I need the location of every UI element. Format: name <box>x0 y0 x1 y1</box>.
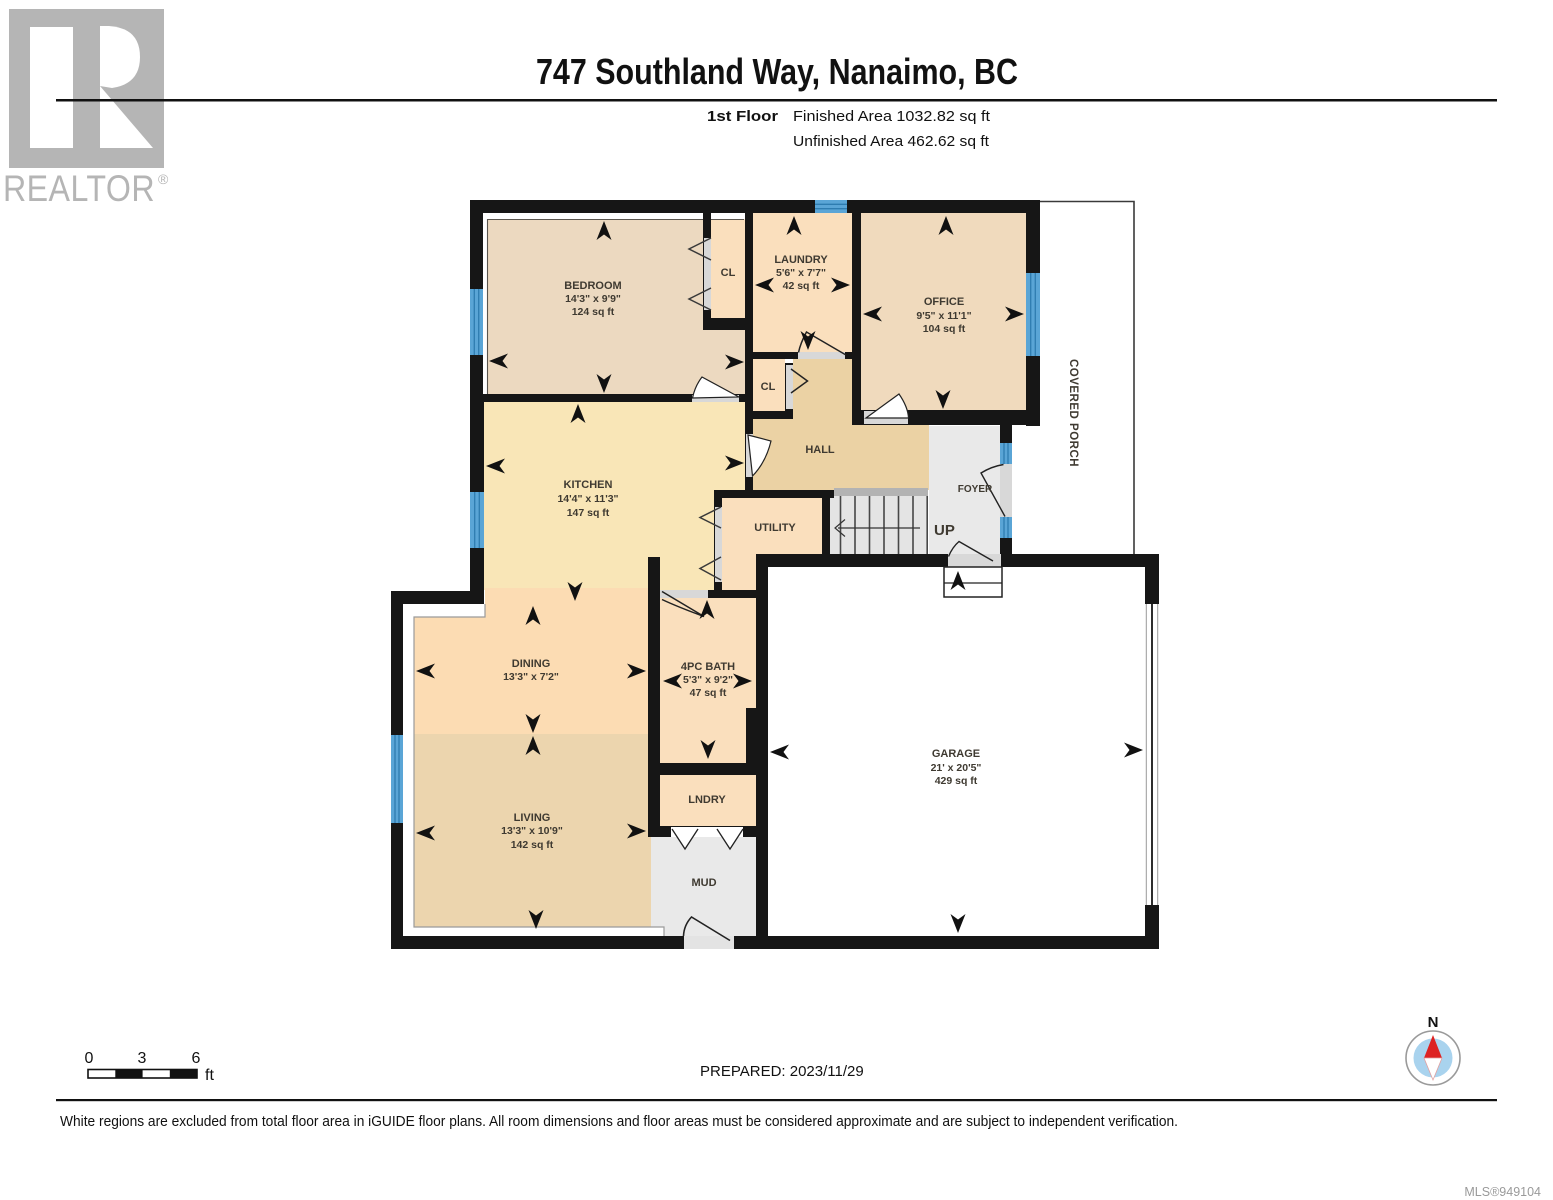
svg-text:®: ® <box>158 171 169 187</box>
svg-text:LAUNDRY: LAUNDRY <box>774 254 828 266</box>
svg-text:GARAGE: GARAGE <box>932 748 980 760</box>
svg-text:5'3" x 9'2": 5'3" x 9'2" <box>683 674 733 686</box>
svg-text:DINING: DINING <box>512 658 551 670</box>
svg-text:21' x 20'5": 21' x 20'5" <box>931 762 982 774</box>
svg-text:FOYER: FOYER <box>958 484 993 495</box>
svg-text:747 Southland Way, Nanaimo, BC: 747 Southland Way, Nanaimo, BC <box>536 51 1018 92</box>
svg-text:13'3" x 7'2": 13'3" x 7'2" <box>503 671 559 683</box>
svg-text:4PC BATH: 4PC BATH <box>681 661 735 673</box>
svg-text:104 sq ft: 104 sq ft <box>923 323 966 335</box>
svg-text:429 sq ft: 429 sq ft <box>935 775 978 787</box>
svg-text:Finished Area 1032.82 sq ft: Finished Area 1032.82 sq ft <box>793 108 991 125</box>
svg-text:BEDROOM: BEDROOM <box>564 280 621 292</box>
svg-text:UTILITY: UTILITY <box>754 522 796 534</box>
svg-text:COVERED PORCH: COVERED PORCH <box>1067 359 1079 467</box>
svg-text:14'4" x 11'3": 14'4" x 11'3" <box>557 493 618 505</box>
svg-text:47 sq ft: 47 sq ft <box>690 687 727 699</box>
svg-text:5'6" x 7'7": 5'6" x 7'7" <box>776 267 826 279</box>
svg-text:0: 0 <box>85 1050 94 1067</box>
svg-text:KITCHEN: KITCHEN <box>564 479 613 491</box>
svg-text:6: 6 <box>192 1050 201 1067</box>
svg-text:LNDRY: LNDRY <box>688 794 726 806</box>
svg-text:147 sq ft: 147 sq ft <box>567 507 610 519</box>
svg-text:142 sq ft: 142 sq ft <box>511 839 554 851</box>
svg-text:CL: CL <box>761 381 776 393</box>
svg-text:42 sq ft: 42 sq ft <box>783 280 820 292</box>
svg-text:MUD: MUD <box>691 877 716 889</box>
svg-text:OFFICE: OFFICE <box>924 296 964 308</box>
svg-text:REALTOR: REALTOR <box>3 168 155 209</box>
svg-text:CL: CL <box>721 267 736 279</box>
svg-text:UP: UP <box>934 522 955 539</box>
svg-text:PREPARED: 2023/11/29: PREPARED: 2023/11/29 <box>700 1063 864 1080</box>
svg-text:N: N <box>1428 1014 1439 1031</box>
svg-text:9'5" x 11'1": 9'5" x 11'1" <box>916 310 971 322</box>
svg-text:Unfinished Area 462.62 sq ft: Unfinished Area 462.62 sq ft <box>793 133 990 150</box>
svg-text:14'3" x 9'9": 14'3" x 9'9" <box>565 293 621 305</box>
svg-text:MLS®949104: MLS®949104 <box>1464 1185 1541 1199</box>
svg-text:White regions are excluded fro: White regions are excluded from total fl… <box>60 1114 1178 1130</box>
svg-text:LIVING: LIVING <box>514 812 551 824</box>
svg-text:HALL: HALL <box>805 444 835 456</box>
svg-text:ft: ft <box>205 1067 214 1084</box>
svg-text:3: 3 <box>138 1050 147 1067</box>
svg-text:13'3" x 10'9": 13'3" x 10'9" <box>501 825 563 837</box>
svg-text:124 sq ft: 124 sq ft <box>572 306 615 318</box>
svg-text:1st Floor: 1st Floor <box>707 108 778 125</box>
